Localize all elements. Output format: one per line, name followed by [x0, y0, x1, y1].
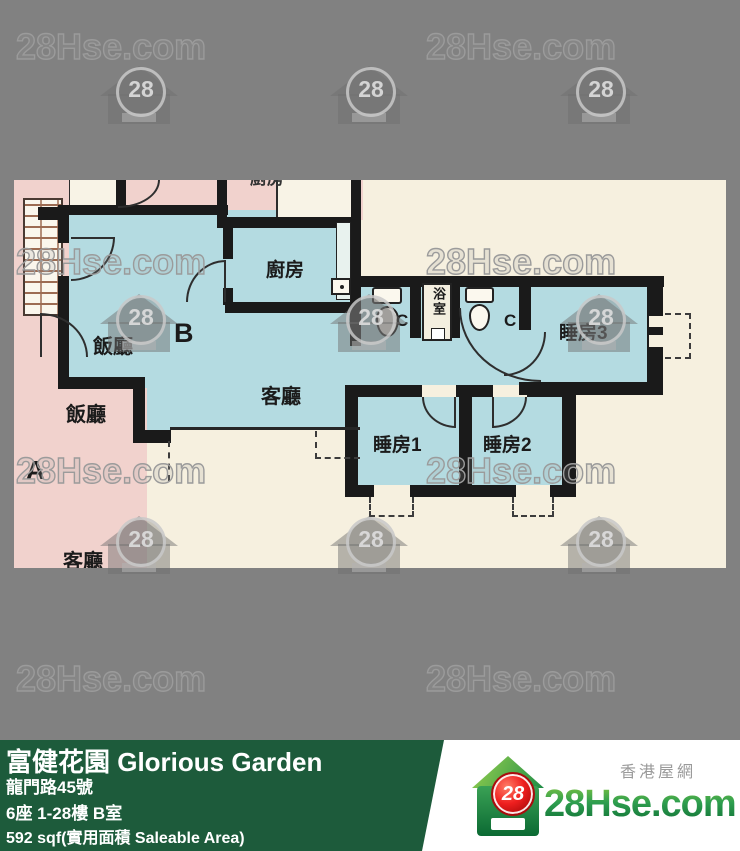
window-opening: [649, 316, 663, 327]
wall: [410, 280, 421, 338]
sink-drain-dot: [340, 285, 344, 289]
estate-address: 龍門路45號: [6, 773, 93, 798]
bedroom1-bay-window: [369, 497, 414, 517]
wc-door-mark: C: [504, 311, 516, 331]
watermark-badge: 28: [576, 295, 626, 345]
bedroom2-bay-window: [512, 497, 554, 517]
wall: [133, 430, 171, 443]
unit-a-dining-label: 飯廳: [66, 404, 106, 427]
window-opening: [649, 335, 663, 347]
basin: [431, 328, 445, 340]
watermark-badge: 28: [346, 295, 396, 345]
wall: [38, 207, 62, 220]
brand-panel: 28 28Hse.com 香港屋網: [420, 740, 740, 851]
watermark-text: 28Hse.com: [426, 450, 616, 492]
watermark-house-icon: 28: [100, 66, 178, 124]
watermark-house-icon: 28: [560, 294, 638, 352]
watermark-house-icon: 28: [330, 516, 408, 574]
watermark-house-icon: 28: [100, 516, 178, 574]
block-floor-flat: 6座 1-28樓 B室: [6, 799, 122, 824]
site-name: 28Hse.com: [544, 783, 736, 826]
floor-plan: 浴室 廚房 廚房 B 飯廳 客廳 飯廳 A 客廳 睡房1 睡房2 睡房3 C C: [14, 180, 726, 568]
watermark-house-icon: 28: [330, 66, 408, 124]
watermark-text: 28Hse.com: [16, 26, 206, 68]
toilet-tank: [465, 287, 494, 303]
watermark-badge: 28: [576, 67, 626, 117]
logo-28-badge: 28: [491, 772, 535, 816]
logo-door: [491, 818, 525, 830]
watermark-house-icon: 28: [560, 516, 638, 574]
adjacent-room-label: 廚房: [250, 180, 284, 189]
bedroom1-label: 睡房1: [373, 435, 422, 457]
balcony-window-dashes: [315, 431, 360, 459]
unit-b-living-label: 客廳: [261, 386, 301, 409]
kitchen-label: 廚房: [266, 260, 304, 282]
watermark-badge: 28: [116, 67, 166, 117]
watermark-badge: 28: [116, 295, 166, 345]
watermark-house-icon: 28: [100, 294, 178, 352]
screenshot-root: { "watermark": { "text": "28Hse.com", "b…: [0, 0, 740, 851]
saleable-area: 592 sqf(實用面積 Saleable Area): [6, 824, 245, 848]
bedroom3-bay-window: [665, 313, 691, 359]
adjacent-inner-room: [276, 180, 355, 219]
watermark-badge: 28: [346, 67, 396, 117]
unit-a-living-label: 客廳: [63, 551, 103, 568]
watermark-text: 28Hse.com: [426, 241, 616, 283]
watermark-text: 28Hse.com: [426, 658, 616, 700]
balcony-line: [170, 427, 360, 430]
site-tagline: 香港屋網: [620, 758, 696, 782]
wall: [60, 205, 228, 215]
watermark-badge: 28: [576, 517, 626, 567]
watermark-text: 28Hse.com: [16, 450, 206, 492]
wall: [223, 217, 233, 259]
watermark-house-icon: 28: [560, 66, 638, 124]
kitchen-sink: [331, 278, 351, 295]
watermark-badge: 28: [346, 517, 396, 567]
watermark-text: 28Hse.com: [426, 26, 616, 68]
bathroom-box: 浴室: [422, 283, 452, 341]
watermark-house-icon: 28: [330, 294, 408, 352]
watermark-text: 28Hse.com: [16, 658, 206, 700]
info-panel: 富健花園 Glorious Garden 龍門路45號 6座 1-28樓 B室 …: [0, 740, 444, 851]
wall: [58, 377, 140, 389]
wall: [345, 485, 374, 497]
watermark-badge: 28: [116, 517, 166, 567]
bathroom-label: 浴室: [430, 287, 445, 317]
watermark-text: 28Hse.com: [16, 241, 206, 283]
